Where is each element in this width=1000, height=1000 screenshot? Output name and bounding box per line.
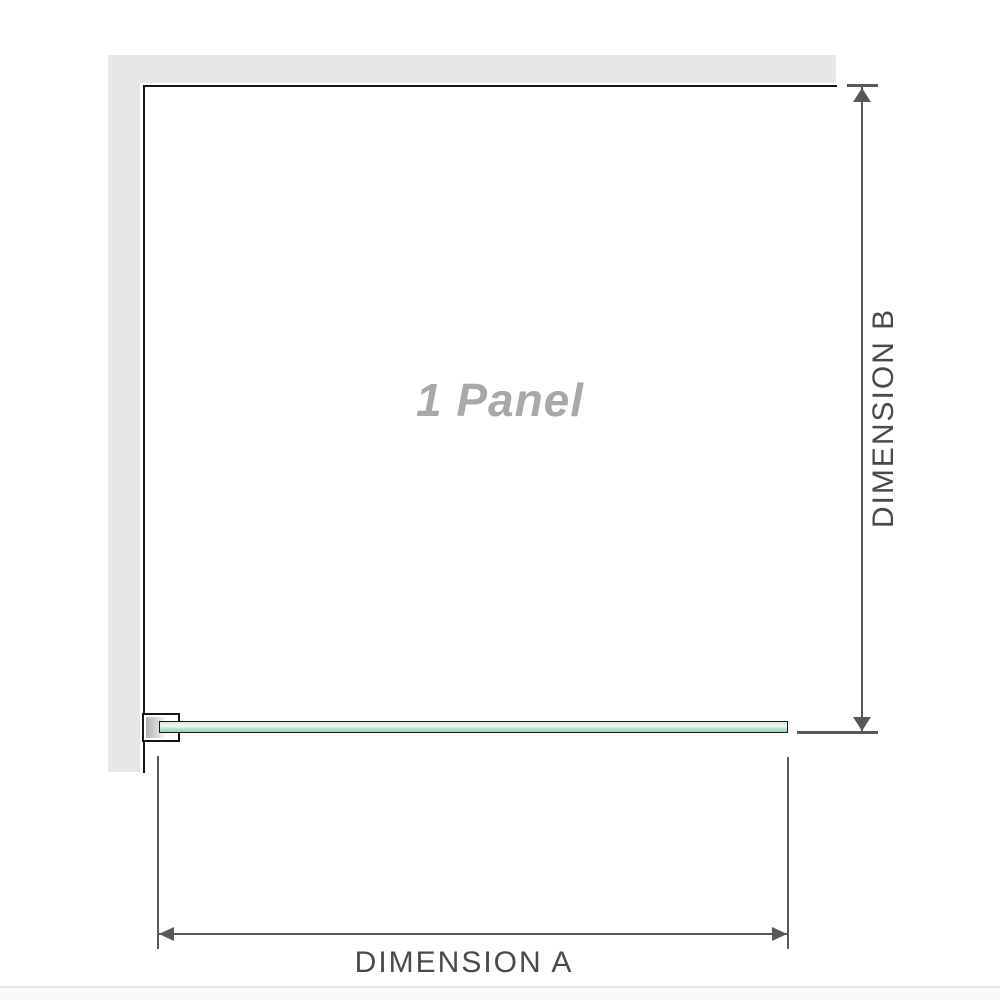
panel-count-label: 1 Panel [416, 373, 584, 427]
wall-left-segment [108, 55, 140, 772]
arrow-down-icon [853, 717, 871, 731]
dimension-b-label: DIMENSION B [867, 308, 901, 528]
dimension-b-line [861, 87, 863, 731]
dimension-a-line [159, 933, 787, 935]
wall-edge-top-line [143, 85, 837, 87]
arrow-left-icon [159, 927, 174, 941]
arrow-up-icon [853, 88, 871, 102]
dimension-a-label: DIMENSION A [355, 946, 574, 980]
dimension-a-right-extension-line [787, 757, 789, 949]
dimension-b-bottom-tick [797, 731, 878, 734]
footer-background-strip [0, 988, 1000, 1000]
diagram-canvas: 1 Panel DIMENSION B DIMENSION A [0, 0, 1000, 1000]
dimension-a-left-extension-line [157, 756, 159, 949]
arrow-right-icon [772, 927, 787, 941]
wall-edge-left-line [143, 85, 145, 773]
wall-top-segment [108, 55, 836, 83]
glass-panel [159, 721, 788, 733]
